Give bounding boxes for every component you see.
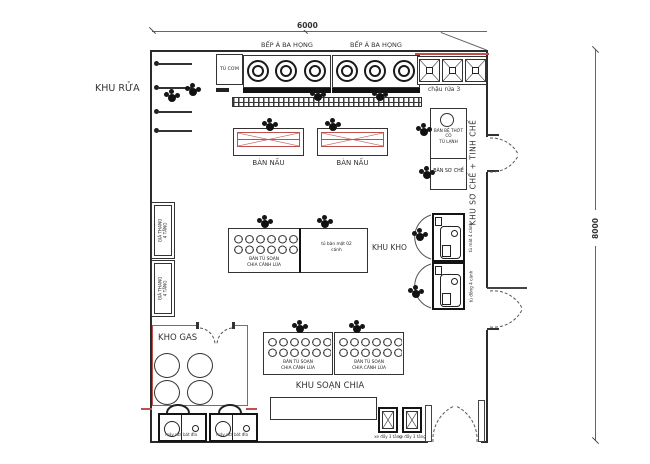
serve-cabinet-bottom-2: BÀN TỦ SOẠN CHIA CÁNH LÙA [334,332,404,375]
two-door-cabinet: tủ bàn mặt 02 cánh [299,228,368,273]
kitchen-floor-plan: 6000 8000 KHU RỬA KHU SƠ CHẾ + TINH CHẾ … [0,0,650,464]
board-table-label: BÀN BỆ THỚT CÓ TỦ LẠNH [432,128,465,144]
fridge-inner-dot [451,278,458,285]
raw-prep-table-label: BÀN SƠ CHẾ [432,169,465,174]
person-figure [325,120,341,133]
asian-range-2 [332,55,420,88]
fridge-body-icon [440,226,461,259]
door-jamb-post [478,400,485,442]
dishwasher-2-label: máy rửa bát đĩa [201,432,263,437]
floor-drain-grating [232,97,422,107]
fridge-inner-dot [451,230,458,237]
board-table-with-fridge: BÀN BỆ THỚT CÓ TỦ LẠNH BÀN SƠ CHẾ [430,108,467,190]
gas-tank-icon [187,353,213,378]
serve-cabinet-center: BÀN TỦ SOẠN CHIA CÁNH LÙA [228,228,300,273]
zone-label-storage: KHU KHO [372,243,407,252]
cooler-4door [432,213,465,262]
burner-icon [275,60,297,82]
dw-knob [192,425,199,432]
dw-knob [243,425,250,432]
dishwasher-1 [158,413,207,442]
person-figure [412,230,428,243]
red-annotation-mark [141,408,152,410]
person-figure [419,168,435,181]
person-figure [408,287,424,300]
wall-top [150,50,488,52]
serve-cabinet-label: BÀN TỦ SOẠN CHIA CÁNH LÙA [229,257,299,268]
red-annotation-mark [246,408,257,410]
rack-label-line2: 4 TẦNG [163,277,168,301]
person-figure [310,90,326,103]
rack-label: GIÁ THANG 4 TẦNG [158,219,169,243]
cook-table-1-label: BÀN NẤU [233,159,304,167]
asian-range-1 [243,55,331,88]
rack-4tier-1: GIÁ THANG 4 TẦNG [151,202,175,259]
fridge-inner-rect [442,245,451,257]
rice-steamer-cabinet: TỦ CƠM [216,54,243,85]
rack-4tier-2: GIÁ THANG 4 TẦNG [151,260,175,317]
board-table-label-line1: BÀN BỆ THỚT CÓ [432,128,465,139]
dimension-top-label: 6000 [295,21,320,30]
burner-icon [336,60,358,82]
cook-table-top [237,132,300,147]
range2-label: BẾP Á BA HỌNG [319,41,433,49]
person-figure [164,91,180,104]
dish-circles [233,234,299,255]
serve-cabinet-bottom-1: BÀN TỦ SOẠN CHIA CÁNH LÙA [263,332,333,375]
two-door-cabinet-label: tủ bàn mặt 02 cánh [309,242,364,253]
triple-sink-label: chậu rửa 3 [428,86,460,93]
sink-basin-icon [442,59,463,82]
rice-steamer-label: TỦ CƠM [220,67,239,72]
person-figure [317,217,333,230]
two-door-cabinet-label-line2: cánh [309,248,364,254]
person-figure [372,90,388,103]
dimension-right-label-wrap: 8000 [583,210,608,246]
serve-cabinet-label-line2: CHIA CÁNH LÙA [229,263,299,269]
door-jamb-post [425,405,432,442]
cooler-label: tủ mát 4 cánh [468,223,473,252]
freezer-label: tủ đông 4 cánh [468,270,473,302]
fridge-door-arc [414,263,432,309]
triple-sink [417,56,487,85]
person-figure [185,85,201,98]
freezer-label-wrap: tủ đông 4 cánh [465,262,476,310]
sink-basin-icon [419,59,440,82]
board-table-label-line2: TỦ LẠNH [432,139,465,144]
dimension-leader [441,32,487,50]
rack-label: GIÁ THANG 4 TẦNG [158,277,169,301]
dimension-right-label: 8000 [591,218,600,239]
door-swing-gas [199,327,233,347]
burner-icon [304,60,326,82]
person-figure [257,217,273,230]
sink-red-edge [415,53,489,55]
serve-cabinet-label-line2: CHIA CÁNH LÙA [335,366,403,372]
zone-label-prep: KHU SƠ CHẾ + TINH CHẾ [469,120,478,226]
wall-right-seg3 [486,330,488,443]
burner-icon [247,60,269,82]
burner-icon [393,60,415,82]
zone-label-washing: KHU RỬA [95,83,140,94]
cart-3tier-2 [402,407,422,433]
cooler-label-wrap: tủ mát 4 cánh [465,213,476,262]
serve-cabinet-label-line2: CHIA CÁNH LÙA [264,366,332,372]
dimension-line-top [152,31,487,32]
freezer-4door [432,262,465,310]
faucet-icon [154,128,194,134]
zone-label-plating: KHU SOẠN CHIA [280,381,380,391]
pass-counter [270,397,377,420]
grate-mark [216,88,229,92]
gas-tank-icon [154,353,180,378]
sink-basin-icon [465,59,486,82]
faucet-icon [154,109,194,115]
table-divider [431,158,466,159]
gas-tank-icon [154,380,180,405]
serve-cabinet-label: BÀN TỦ SOẠN CHIA CÁNH LÙA [335,360,403,371]
faucet-icon [154,61,194,67]
dish-circles [338,337,402,358]
door-swing-bottom [432,403,478,443]
table-sink-hole [440,113,454,127]
cart-3tier-1 [378,407,398,433]
door-swing-right-2 [489,289,529,329]
person-figure [262,120,278,133]
cart-top-icon [406,411,418,429]
wall-right-seg2 [486,172,488,288]
rack-label-line2: 4 TẦNG [163,219,168,243]
fridge-handle [435,217,442,226]
cook-table-top [321,132,384,147]
fridge-inner-rect [442,293,451,305]
gas-tank-icon [187,380,213,405]
cook-table-2-label: BÀN NẤU [317,159,388,167]
person-figure [349,322,365,335]
serve-cabinet-label: BÀN TỦ SOẠN CHIA CÁNH LÙA [264,360,332,371]
fridge-body-icon [440,274,461,307]
dishwasher-2 [209,413,258,442]
burner-icon [364,60,386,82]
cart-top-icon [382,411,394,429]
person-figure [416,125,432,138]
person-figure [292,322,308,335]
door-swing-right-1 [489,136,523,174]
dish-circles [267,337,331,358]
